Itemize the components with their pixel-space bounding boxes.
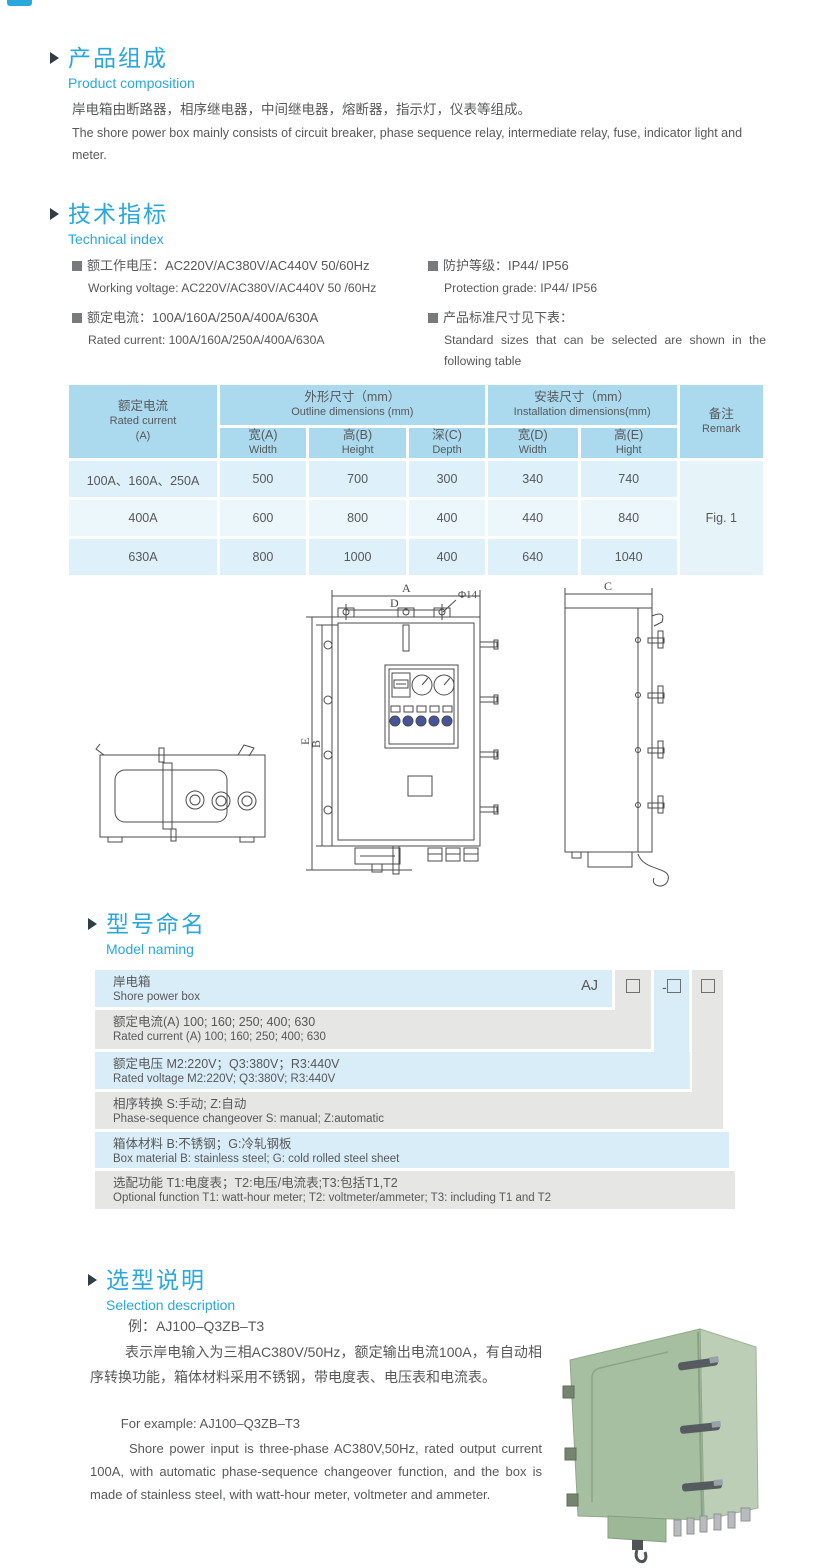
ladder-row-box-material: 箱体材料 B:不锈钢；G:冷轧钢板 Box material B: stainl… [95, 1132, 729, 1168]
datasheet-page: 产品组成 Product composition 岸电箱由断路器，相序继电器，中… [0, 0, 830, 1568]
cell-height: 700 [309, 461, 407, 497]
cell-current: 400A [69, 500, 217, 536]
dim-label-a: A [402, 581, 411, 595]
page-corner-mark [7, 0, 32, 6]
cell-install-width: 340 [488, 461, 578, 497]
section-title-en: Product composition [68, 75, 195, 91]
code-box-icon [626, 979, 640, 993]
spec-protection-grade: 防护等级：IP44/ IP56 Protection grade: IP44/ … [428, 253, 768, 299]
bullet-icon [428, 313, 438, 323]
section-title-en: Selection description [106, 1297, 235, 1313]
section-title-zh: 技术指标 [68, 201, 168, 229]
section-technical-index-header: 技术指标 Technical index [50, 201, 168, 247]
cell-depth: 300 [409, 461, 484, 497]
cell-depth: 400 [409, 500, 484, 536]
cell-install-width: 640 [488, 539, 578, 575]
product-composition-text-en: The shore power box mainly consists of c… [72, 122, 772, 166]
header-installation-dimensions: 安装尺寸（mm） Installation dimensions(mm) [488, 385, 677, 425]
cell-install-hight: 740 [581, 461, 677, 497]
header-width-d: 宽(D)Width [488, 428, 578, 458]
row-label-en: Rated current (A) 100; 160; 250; 400; 63… [113, 1030, 651, 1045]
dim-label-b: B [309, 740, 323, 748]
header-width-a: 宽(A)Width [220, 428, 306, 458]
cell-remark: Fig. 1 [680, 461, 763, 575]
spec-standard-sizes: 产品标准尺寸见下表： Standard sizes that can be se… [428, 305, 768, 372]
section-arrow-icon [88, 918, 97, 930]
cell-width: 600 [220, 500, 306, 536]
model-code-prefix: AJ [581, 978, 598, 994]
cell-height: 1000 [309, 539, 407, 575]
selection-example-en: For example: AJ100–Q3ZB–T3 [100, 1413, 540, 1435]
section-title-en: Model naming [106, 941, 206, 957]
side-view [565, 588, 668, 886]
row-label-zh: 额定电压 M2:220V；Q3:380V；R3:440V [113, 1056, 690, 1072]
dimension-table: 额定电流 Rated current (A) 外形尺寸（mm） Outline … [66, 382, 766, 578]
table-row: 400A 600 800 400 440 840 [69, 500, 763, 536]
technical-drawing: A D Φ14 E B C [60, 580, 790, 890]
header-rated-current: 额定电流 Rated current (A) [69, 385, 217, 458]
ladder-row-optional-function: 选配功能 T1:电度表；T2:电压/电流表;T3:包括T1,T2 Optiona… [95, 1171, 735, 1209]
front-view [306, 590, 498, 874]
section-arrow-icon [50, 52, 59, 64]
spec-column-right: 防护等级：IP44/ IP56 Protection grade: IP44/ … [428, 253, 768, 378]
cell-install-hight: 840 [581, 500, 677, 536]
spec-column-left: 额工作电压：AC220V/AC380V/AC440V 50/60Hz Worki… [72, 253, 420, 357]
cell-current: 630A [69, 539, 217, 575]
header-depth-c: 深(C)Depth [409, 428, 484, 458]
cell-width: 500 [220, 461, 306, 497]
bullet-icon [72, 261, 82, 271]
product-composition-text-zh: 岸电箱由断路器，相序继电器，中间继电器，熔断器，指示灯，仪表等组成。 [72, 98, 772, 121]
cell-install-width: 440 [488, 500, 578, 536]
section-title-zh: 选型说明 [106, 1267, 235, 1295]
section-selection-description-header: 选型说明 Selection description [88, 1267, 235, 1313]
section-title-en: Technical index [68, 231, 168, 247]
selection-body-en: Shore power input is three-phase AC380V,… [90, 1437, 542, 1506]
row-label-en: Optional function T1: watt-hour meter; T… [113, 1191, 735, 1206]
selection-example-zh: 例：AJ100–Q3ZB–T3 [100, 1315, 540, 1338]
section-arrow-icon [50, 208, 59, 220]
row-label-zh: 岸电箱 [113, 974, 612, 990]
code-box-icon [667, 979, 681, 993]
dim-label-d: D [390, 596, 399, 610]
spec-zh: 额工作电压：AC220V/AC380V/AC440V 50/60Hz [87, 258, 370, 273]
spec-en: Working voltage: AC220V/AC380V/AC440V 50… [88, 278, 420, 299]
spec-zh: 额定电流：100A/160A/250A/400A/630A [87, 310, 318, 325]
section-arrow-icon [88, 1274, 97, 1286]
row-label-en: Phase-sequence changeover S: manual; Z:a… [113, 1112, 723, 1127]
header-remark: 备注 Remark [680, 385, 763, 458]
row-label-zh: 相序转换 S:手动; Z:自动 [113, 1096, 723, 1112]
cell-width: 800 [220, 539, 306, 575]
row-label-zh: 选配功能 T1:电度表；T2:电压/电流表;T3:包括T1,T2 [113, 1175, 735, 1191]
selection-body-zh: 表示岸电输入为三相AC380V/50Hz，额定输出电流100A，有自动相序转换功… [90, 1340, 542, 1389]
section-title-zh: 产品组成 [68, 45, 195, 73]
header-height-b: 高(B)Height [309, 428, 407, 458]
bullet-icon [72, 313, 82, 323]
row-label-en: Rated voltage M2:220V; Q3:380V; R3:440V [113, 1072, 690, 1087]
header-hight-e: 高(E)Hight [581, 428, 677, 458]
ladder-row-shore-power-box: 岸电箱 Shore power box AJ [95, 970, 612, 1007]
section-product-composition-header: 产品组成 Product composition [50, 45, 195, 91]
ladder-row-rated-current: 额定电流(A) 100; 160; 250; 400; 630 Rated cu… [95, 1010, 651, 1049]
row-label-en: Box material B: stainless steel; G: cold… [113, 1152, 729, 1167]
spec-en: Protection grade: IP44/ IP56 [444, 278, 768, 299]
spec-en: Standard sizes that can be selected are … [444, 330, 766, 372]
product-photo [548, 1302, 806, 1568]
spec-zh: 防护等级：IP44/ IP56 [443, 258, 569, 273]
dim-label-c: C [604, 580, 612, 593]
cell-current: 100A、160A、250A [69, 461, 217, 497]
row-label-zh: 箱体材料 B:不锈钢；G:冷轧钢板 [113, 1136, 729, 1152]
bullet-icon [428, 261, 438, 271]
cell-depth: 400 [409, 539, 484, 575]
code-box-icon [701, 979, 715, 993]
spec-en: Rated current: 100A/160A/250A/400A/630A [88, 330, 420, 351]
ladder-row-rated-voltage: 额定电压 M2:220V；Q3:380V；R3:440V Rated volta… [95, 1052, 690, 1089]
dim-label-phi14: Φ14 [458, 589, 478, 601]
bottom-view [96, 744, 265, 842]
ladder-row-phase-sequence: 相序转换 S:手动; Z:自动 Phase-sequence changeove… [95, 1092, 723, 1129]
header-outline-dimensions: 外形尺寸（mm） Outline dimensions (mm) [220, 385, 485, 425]
cell-install-hight: 1040 [581, 539, 677, 575]
model-naming-ladder: 岸电箱 Shore power box AJ - 额定电流(A) 100; 16… [95, 970, 735, 1210]
row-label-en: Shore power box [113, 990, 612, 1005]
section-model-naming-header: 型号命名 Model naming [88, 911, 206, 957]
spec-rated-current: 额定电流：100A/160A/250A/400A/630A Rated curr… [72, 305, 420, 351]
spec-zh: 产品标准尺寸见下表： [443, 310, 573, 325]
spec-working-voltage: 额工作电压：AC220V/AC380V/AC440V 50/60Hz Worki… [72, 253, 420, 299]
table-row: 630A 800 1000 400 640 1040 [69, 539, 763, 575]
section-title-zh: 型号命名 [106, 911, 206, 939]
row-label-zh: 额定电流(A) 100; 160; 250; 400; 630 [113, 1014, 651, 1030]
table-row: 100A、160A、250A 500 700 300 340 740 Fig. … [69, 461, 763, 497]
cell-height: 800 [309, 500, 407, 536]
